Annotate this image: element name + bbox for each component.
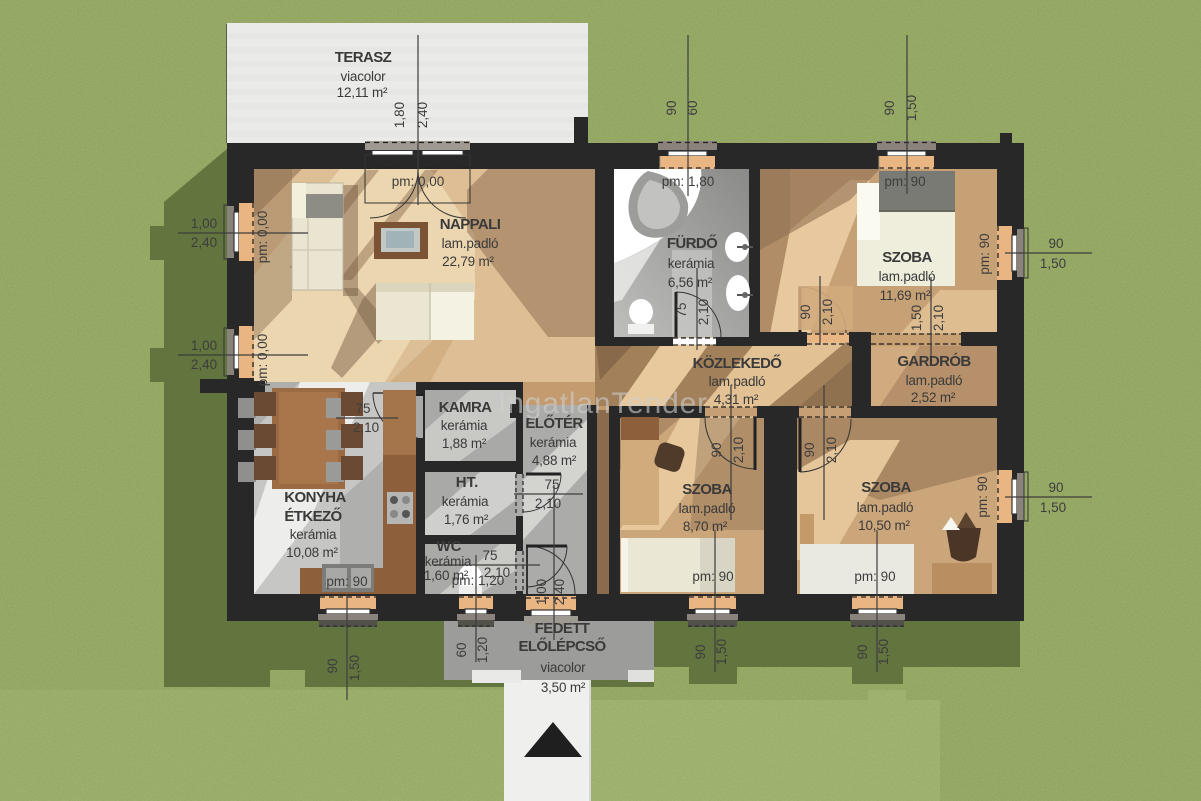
svg-text:FÜRDŐ: FÜRDŐ [667,234,718,252]
svg-text:pm: 90: pm: 90 [692,569,733,584]
svg-text:1,00: 1,00 [191,338,217,353]
svg-text:SZOBA: SZOBA [861,479,911,496]
svg-text:lam.padló: lam.padló [442,236,499,251]
svg-text:75: 75 [544,477,559,492]
svg-text:IngatlanTender: IngatlanTender [498,387,708,420]
svg-text:2,40: 2,40 [415,102,430,128]
svg-text:pm: 90: pm: 90 [975,476,990,517]
svg-text:lam.padló: lam.padló [857,500,914,515]
svg-text:lam.padló: lam.padló [906,373,963,388]
svg-text:6,56 m²: 6,56 m² [668,275,713,290]
svg-text:1,50: 1,50 [714,639,729,665]
svg-text:2,40: 2,40 [552,579,567,605]
svg-text:pm: 0,00: pm: 0,00 [392,174,445,189]
svg-text:90: 90 [709,442,724,457]
svg-text:lam.padló: lam.padló [679,501,736,516]
svg-text:2,10: 2,10 [824,437,839,463]
svg-text:2,52 m²: 2,52 m² [911,390,956,405]
svg-text:2,10: 2,10 [731,437,746,463]
svg-text:pm: 90: pm: 90 [977,233,992,274]
svg-text:75: 75 [482,548,497,563]
svg-text:90: 90 [693,644,708,659]
svg-text:90: 90 [882,100,897,115]
svg-text:8,70 m²: 8,70 m² [683,519,728,534]
svg-text:1,50: 1,50 [1040,500,1066,515]
svg-text:90: 90 [1048,480,1063,495]
svg-text:kerámia: kerámia [442,494,489,509]
svg-text:75: 75 [355,401,370,416]
svg-text:viacolor: viacolor [341,69,387,84]
svg-text:12,11 m²: 12,11 m² [337,85,388,100]
svg-text:viacolor: viacolor [541,660,587,675]
svg-text:1,00: 1,00 [191,216,217,231]
svg-text:pm: 1,80: pm: 1,80 [662,174,715,189]
svg-text:pm: 90: pm: 90 [326,574,367,589]
svg-text:90: 90 [325,658,340,673]
svg-text:2,10: 2,10 [353,420,379,435]
svg-text:ELŐLÉPCSŐ: ELŐLÉPCSŐ [518,637,606,655]
svg-text:1,50: 1,50 [904,95,919,121]
svg-text:1,50: 1,50 [347,655,362,681]
svg-text:11,69 m²: 11,69 m² [880,288,931,303]
svg-text:90: 90 [664,100,679,115]
svg-text:SZOBA: SZOBA [682,481,732,498]
svg-text:10,50 m²: 10,50 m² [858,518,910,533]
svg-text:SZOBA: SZOBA [882,249,932,266]
svg-text:2,10: 2,10 [535,496,561,511]
svg-text:22,79 m²: 22,79 m² [442,254,494,269]
svg-text:kerámia: kerámia [668,256,715,271]
svg-text:60: 60 [454,642,469,657]
svg-text:kerámia: kerámia [441,418,488,433]
svg-text:2,40: 2,40 [191,235,217,250]
svg-text:1,80: 1,80 [392,102,407,128]
svg-text:2,10: 2,10 [484,565,510,580]
svg-text:pm: 0,00: pm: 0,00 [255,334,270,387]
svg-text:1,00: 1,00 [534,579,549,605]
svg-text:75: 75 [674,302,689,317]
svg-text:2,40: 2,40 [191,357,217,372]
svg-text:ÉTKEZŐ: ÉTKEZŐ [284,507,342,525]
svg-text:90: 90 [802,442,817,457]
svg-text:TERASZ: TERASZ [335,49,392,66]
svg-text:GARDRÓB: GARDRÓB [897,352,971,370]
svg-text:1,50: 1,50 [909,305,924,331]
svg-text:1,20: 1,20 [475,637,490,663]
svg-text:10,08 m²: 10,08 m² [286,545,338,560]
svg-text:1,50: 1,50 [876,639,891,665]
svg-text:2,10: 2,10 [931,305,946,331]
svg-text:lam.padló: lam.padló [709,374,766,389]
svg-text:kerámia: kerámia [425,554,472,569]
svg-text:3,50 m²: 3,50 m² [541,680,586,695]
svg-text:FEDETT: FEDETT [535,620,590,637]
svg-text:1,76 m²: 1,76 m² [444,512,489,527]
svg-text:KONYHA: KONYHA [284,489,346,506]
svg-text:90: 90 [798,304,813,319]
svg-text:1,60 m²: 1,60 m² [424,568,469,583]
svg-text:2,10: 2,10 [820,299,835,325]
svg-text:pm: 90: pm: 90 [854,569,895,584]
svg-text:HT.: HT. [456,474,479,491]
svg-text:pm: 90: pm: 90 [884,174,925,189]
svg-text:90: 90 [855,644,870,659]
svg-text:WC: WC [437,538,462,555]
svg-text:NAPPALI: NAPPALI [440,216,501,233]
svg-text:kerámia: kerámia [530,435,577,450]
svg-text:4,31 m²: 4,31 m² [714,392,759,407]
svg-text:KÖZLEKEDŐ: KÖZLEKEDŐ [693,354,783,372]
svg-text:1,50: 1,50 [1040,256,1066,271]
svg-text:pm: 0,00: pm: 0,00 [255,211,270,264]
svg-text:kerámia: kerámia [290,527,337,542]
svg-text:lam.padló: lam.padló [879,269,936,284]
svg-text:4,88 m²: 4,88 m² [532,453,577,468]
svg-text:2,10: 2,10 [696,299,711,325]
svg-text:1,88 m²: 1,88 m² [442,436,487,451]
svg-text:KAMRA: KAMRA [439,399,493,416]
svg-text:60: 60 [685,100,700,115]
svg-text:90: 90 [1048,236,1063,251]
